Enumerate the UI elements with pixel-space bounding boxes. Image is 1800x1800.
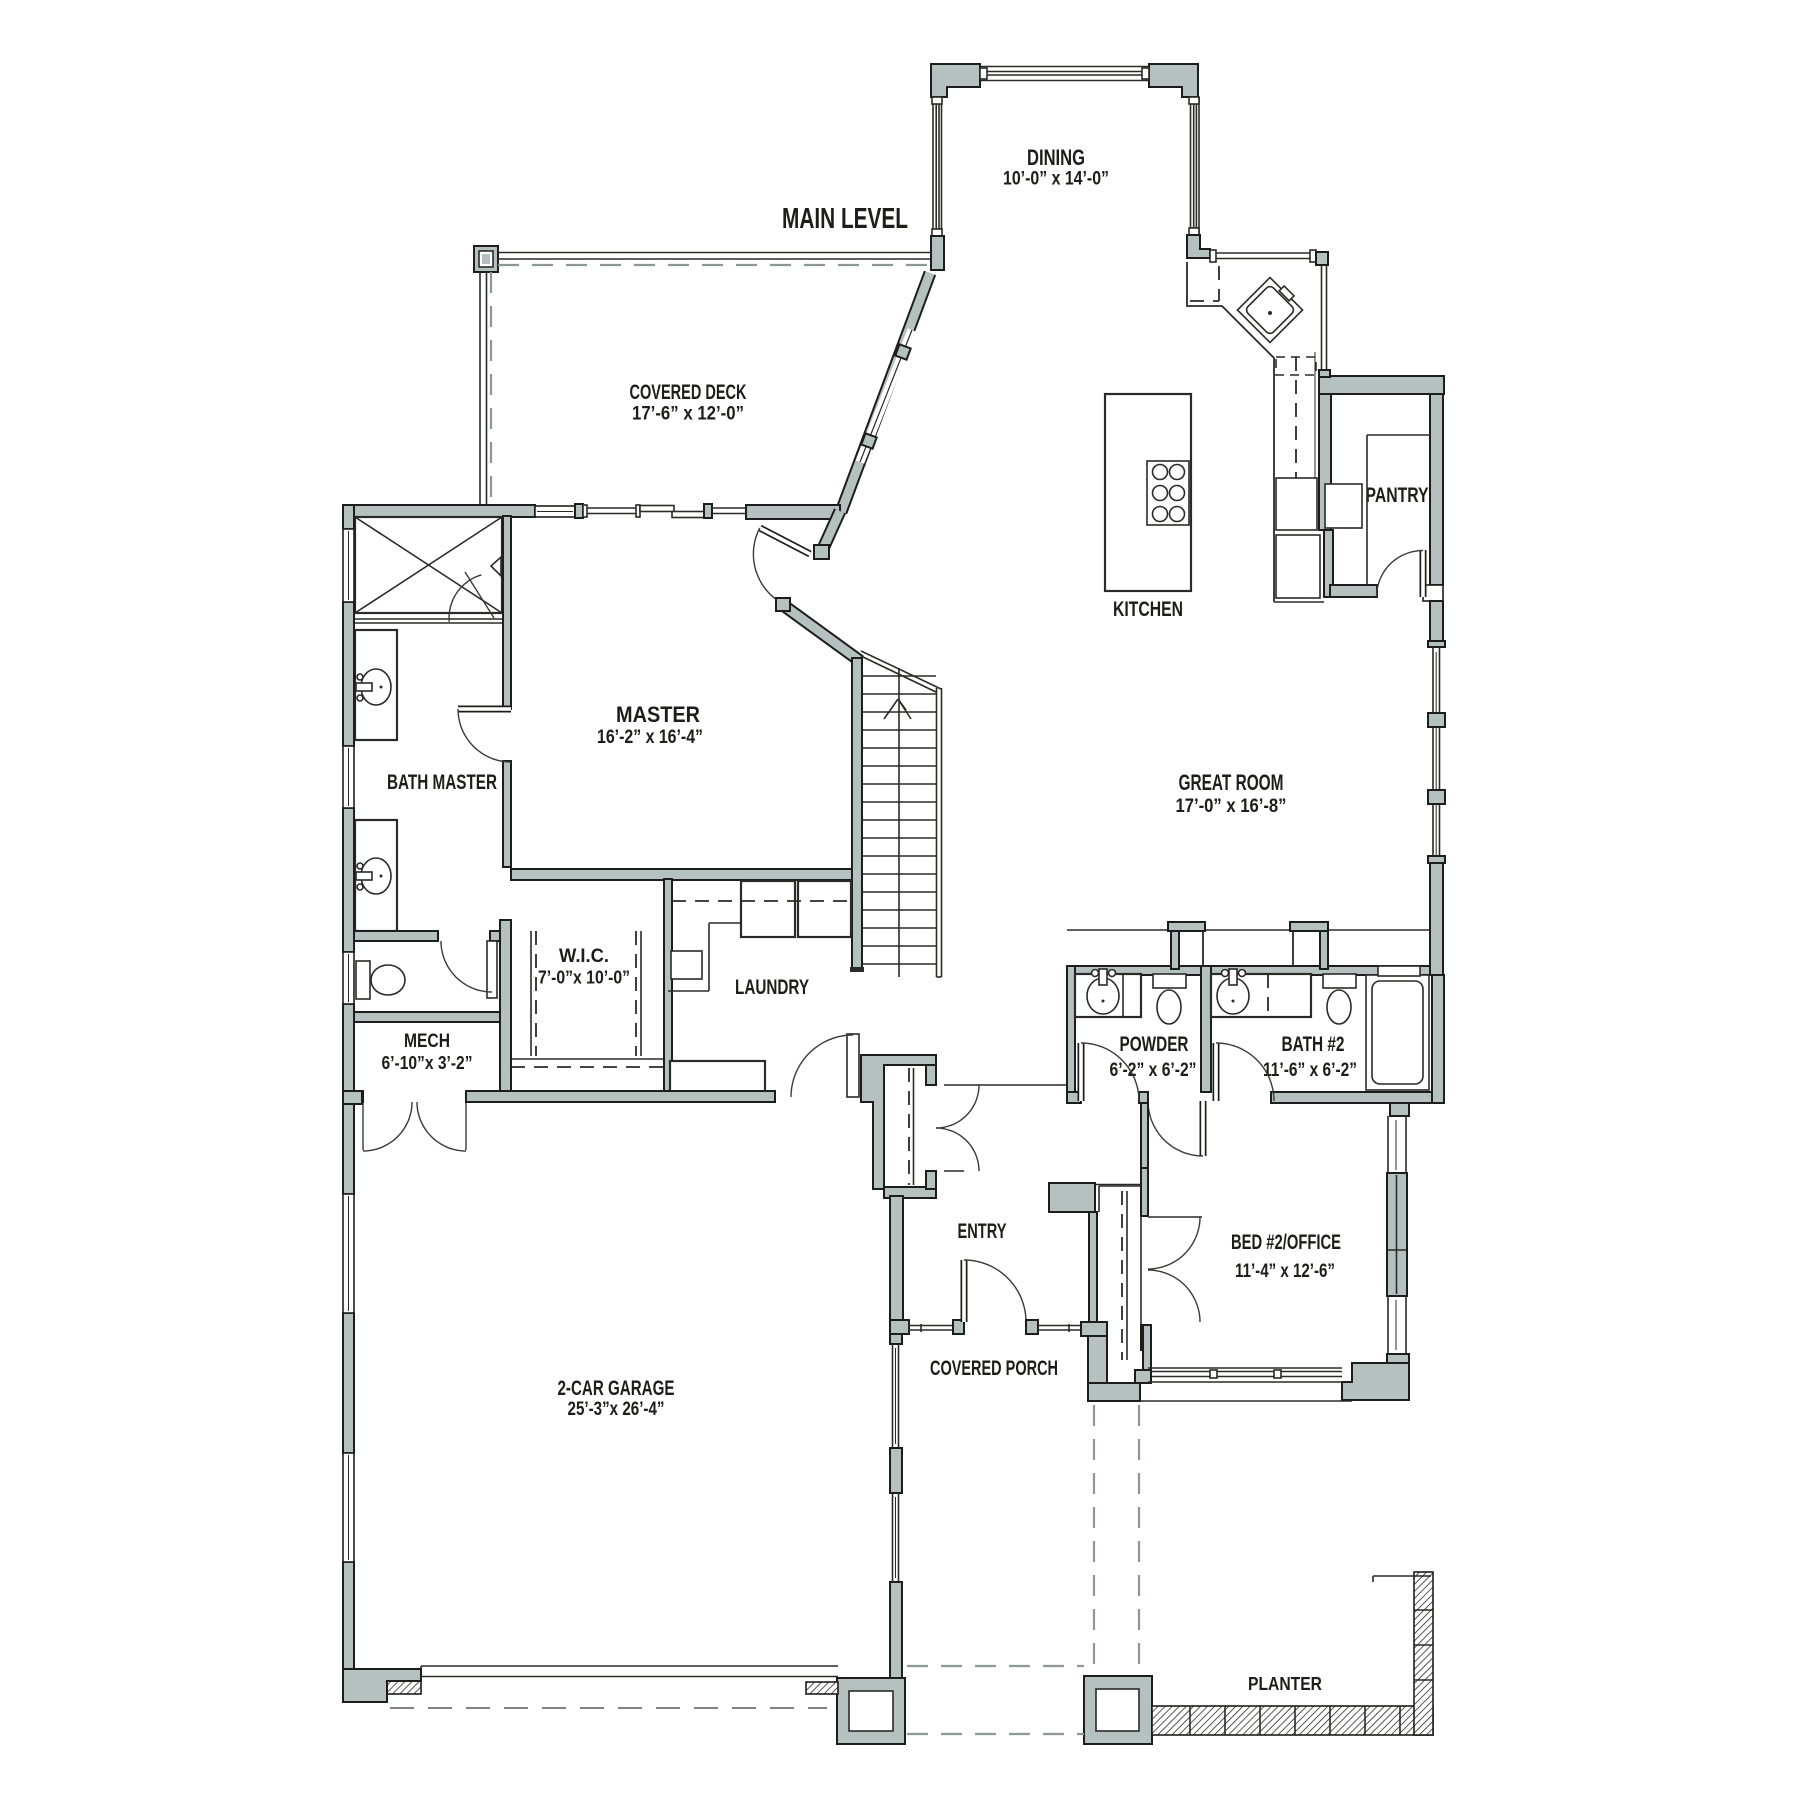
svg-text:17’-0” x 16’-8”: 17’-0” x 16’-8”	[1176, 796, 1287, 817]
svg-text:11’-4” x 12’-6”: 11’-4” x 12’-6”	[1235, 1261, 1335, 1282]
svg-text:6’-2” x 6’-2”: 6’-2” x 6’-2”	[1110, 1060, 1197, 1081]
svg-text:MAIN LEVEL: MAIN LEVEL	[782, 203, 908, 235]
svg-text:10’-0” x 14’-0”: 10’-0” x 14’-0”	[1003, 169, 1109, 190]
svg-text:POWDER: POWDER	[1120, 1033, 1189, 1056]
svg-text:BATH MASTER: BATH MASTER	[387, 771, 497, 794]
svg-text:LAUNDRY: LAUNDRY	[735, 976, 809, 999]
svg-text:GREAT ROOM: GREAT ROOM	[1179, 770, 1284, 795]
svg-text:6’-10”x 3’-2”: 6’-10”x 3’-2”	[382, 1053, 473, 1073]
svg-text:MECH: MECH	[404, 1031, 450, 1052]
svg-text:KITCHEN: KITCHEN	[1113, 598, 1183, 621]
svg-text:PANTRY: PANTRY	[1366, 484, 1429, 507]
svg-text:COVERED DECK: COVERED DECK	[630, 381, 747, 404]
svg-text:ENTRY: ENTRY	[958, 1220, 1007, 1243]
svg-text:W.I.C.: W.I.C.	[559, 946, 609, 967]
svg-text:11’-6” x 6’-2”: 11’-6” x 6’-2”	[1263, 1060, 1357, 1081]
svg-text:2-CAR GARAGE: 2-CAR GARAGE	[558, 1377, 675, 1400]
svg-text:COVERED PORCH: COVERED PORCH	[930, 1357, 1058, 1380]
svg-text:BED #2/OFFICE: BED #2/OFFICE	[1231, 1231, 1341, 1254]
svg-text:DINING: DINING	[1027, 145, 1085, 170]
svg-text:25’-3”x 26’-4”: 25’-3”x 26’-4”	[568, 1399, 665, 1420]
svg-text:BATH #2: BATH #2	[1282, 1033, 1345, 1056]
svg-text:16’-2” x 16’-4”: 16’-2” x 16’-4”	[597, 727, 703, 748]
svg-text:7’-0”x 10’-0”: 7’-0”x 10’-0”	[538, 968, 630, 988]
svg-text:MASTER: MASTER	[616, 702, 700, 727]
svg-text:17’-6” x 12’-0”: 17’-6” x 12’-0”	[632, 404, 744, 425]
svg-text:PLANTER: PLANTER	[1248, 1674, 1322, 1694]
